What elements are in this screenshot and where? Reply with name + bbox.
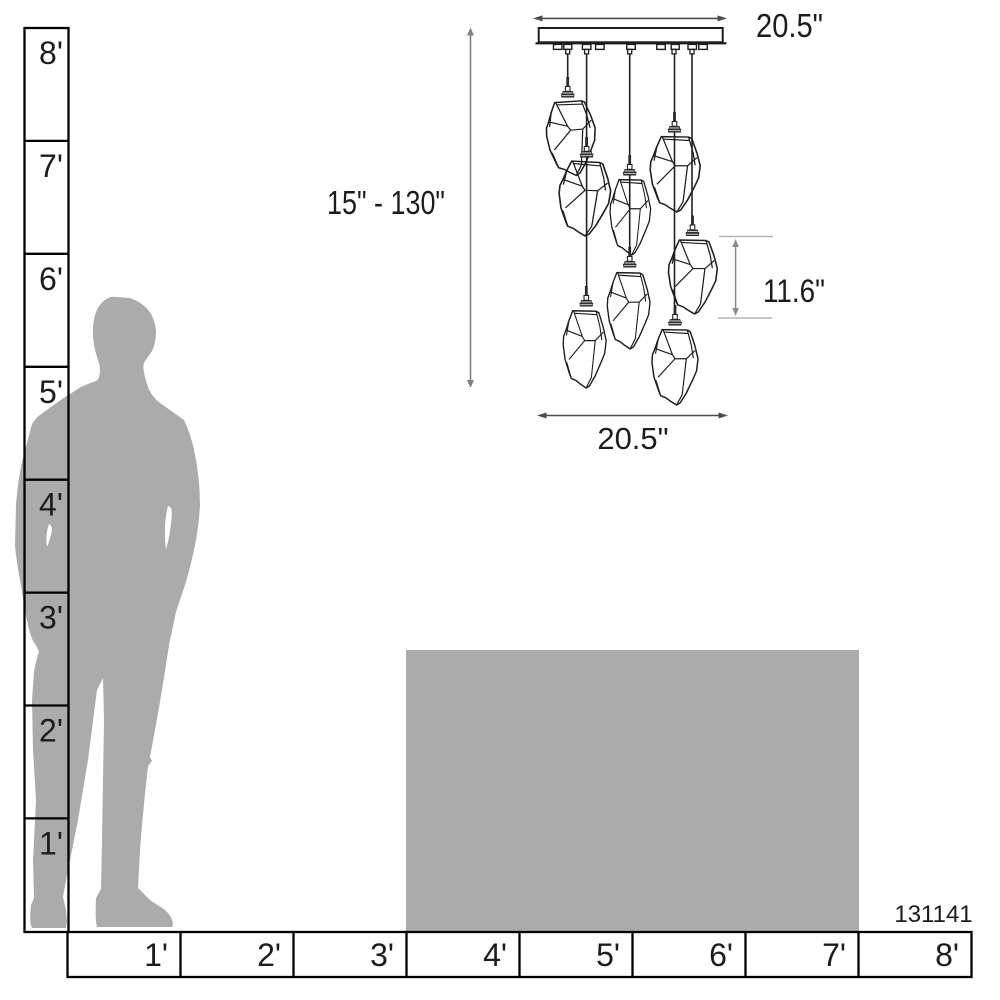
svg-text:1': 1' (39, 825, 63, 861)
svg-text:5': 5' (596, 937, 620, 973)
svg-text:15" - 130": 15" - 130" (327, 184, 445, 221)
svg-text:11.6": 11.6" (763, 273, 825, 309)
svg-text:8': 8' (935, 937, 959, 973)
svg-text:1': 1' (144, 937, 168, 973)
svg-text:6': 6' (709, 937, 733, 973)
svg-text:20.5": 20.5" (597, 421, 668, 456)
svg-text:2': 2' (39, 713, 63, 749)
svg-text:5': 5' (39, 374, 63, 410)
svg-text:7': 7' (39, 148, 63, 184)
svg-text:3': 3' (370, 937, 394, 973)
svg-text:131141: 131141 (894, 901, 972, 928)
svg-text:7': 7' (822, 937, 846, 973)
svg-text:20.5": 20.5" (756, 7, 823, 44)
svg-text:6': 6' (39, 261, 63, 297)
svg-text:4': 4' (39, 487, 63, 523)
svg-text:3': 3' (39, 600, 63, 636)
svg-text:2': 2' (257, 937, 281, 973)
svg-text:4': 4' (483, 937, 507, 973)
svg-text:8': 8' (39, 35, 63, 71)
